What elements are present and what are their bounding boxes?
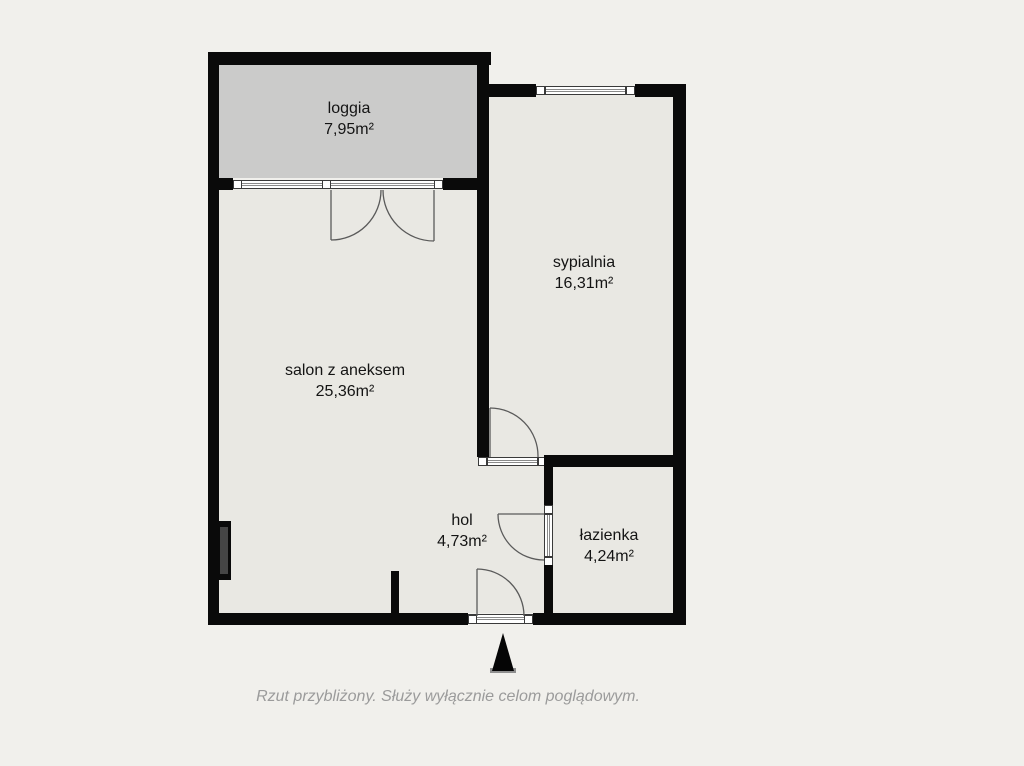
room-name: sypialnia <box>553 252 615 273</box>
wall-sypialnia-top-right <box>635 84 673 97</box>
sypialnia-door-threshold <box>487 457 538 466</box>
room-area: 4,73m² <box>437 531 487 552</box>
entrance-arrow-icon <box>492 633 514 671</box>
room-name: salon z aneksem <box>285 360 405 381</box>
window-stop <box>434 180 443 189</box>
wall-lazienka-top <box>547 455 673 467</box>
wall-loggia-bottom-left-stub <box>219 178 233 190</box>
room-area: 25,36m² <box>285 381 405 402</box>
room-label-sypialnia: sypialnia 16,31m² <box>553 252 615 294</box>
wall-hol-lazienka-upper <box>544 455 553 506</box>
wall-sypialnia-left <box>477 52 489 457</box>
room-area: 7,95m² <box>324 119 374 140</box>
door-stop <box>468 615 477 624</box>
room-name: hol <box>437 510 487 531</box>
room-area: 4,24m² <box>580 546 639 567</box>
wall-salon-hol-stub <box>391 571 399 615</box>
wall-bottom-right <box>533 613 686 625</box>
door-stop <box>544 505 553 514</box>
entrance-arrow-base <box>490 668 516 673</box>
room-label-loggia: loggia 7,95m² <box>324 98 374 140</box>
wall-right-outer <box>673 84 686 625</box>
room-area: 16,31m² <box>553 273 615 294</box>
window-stop <box>233 180 242 189</box>
window-stop <box>322 180 331 189</box>
pilaster-inner <box>220 527 228 574</box>
room-name: loggia <box>324 98 374 119</box>
window-stop <box>536 86 545 95</box>
sypialnia-window-band <box>545 86 626 95</box>
wall-hol-lazienka-lower <box>544 565 553 625</box>
loggia-window-band <box>233 180 443 189</box>
room-name: łazienka <box>580 525 639 546</box>
door-stop <box>478 457 487 466</box>
wall-sypialnia-top-left <box>477 84 536 97</box>
room-label-hol: hol 4,73m² <box>437 510 487 552</box>
door-stop <box>524 615 533 624</box>
lazienka-door-frame <box>544 514 553 557</box>
wall-loggia-top <box>208 52 491 65</box>
window-stop <box>626 86 635 95</box>
wall-bottom-left <box>208 613 468 625</box>
room-label-salon: salon z aneksem 25,36m² <box>285 360 405 402</box>
room-label-lazienka: łazienka 4,24m² <box>580 525 639 567</box>
floor-plan: loggia 7,95m² sypialnia 16,31m² salon z … <box>0 0 1024 766</box>
disclaimer-caption: Rzut przybliżony. Służy wyłącznie celom … <box>256 688 640 706</box>
